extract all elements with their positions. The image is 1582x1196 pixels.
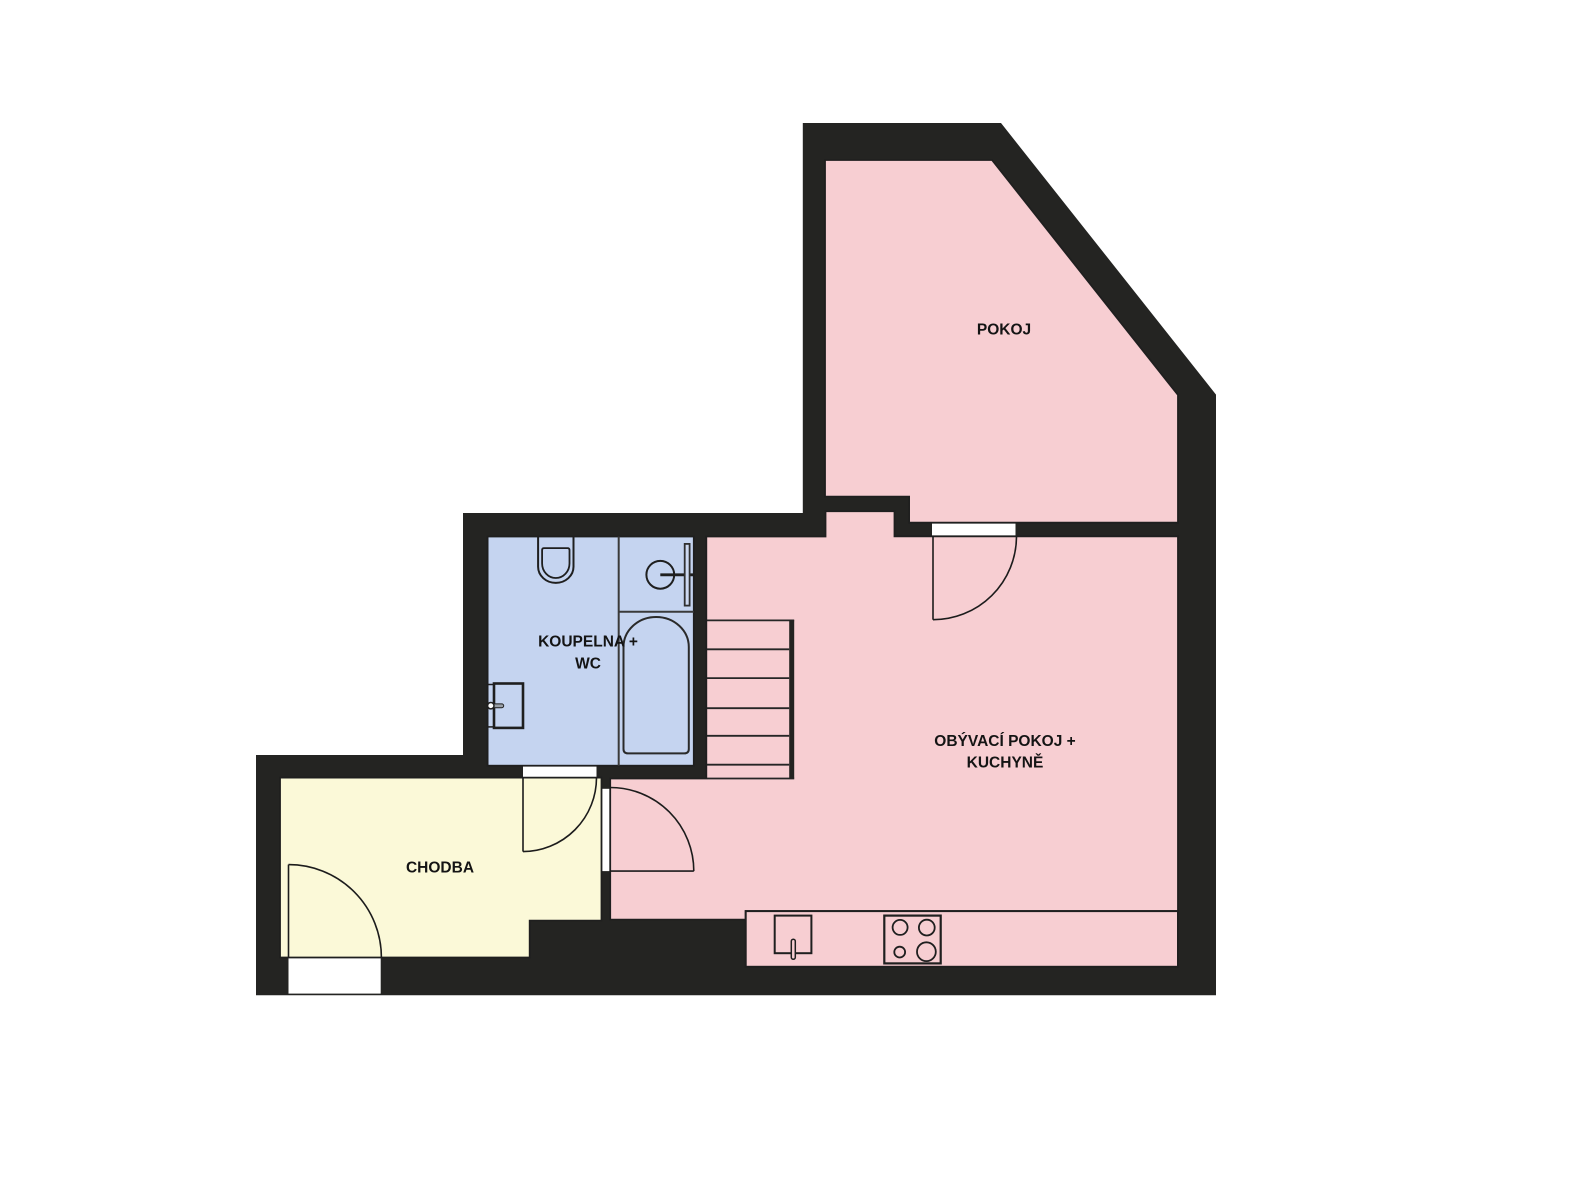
svg-text:POKOJ: POKOJ	[977, 322, 1031, 339]
svg-text:KOUPELNA +: KOUPELNA +	[538, 633, 638, 650]
svg-text:WC: WC	[575, 656, 601, 673]
svg-text:CHODBA: CHODBA	[406, 860, 474, 877]
svg-text:OBÝVACÍ POKOJ +: OBÝVACÍ POKOJ +	[934, 732, 1075, 750]
svg-text:KUCHYNĚ: KUCHYNĚ	[967, 754, 1044, 772]
